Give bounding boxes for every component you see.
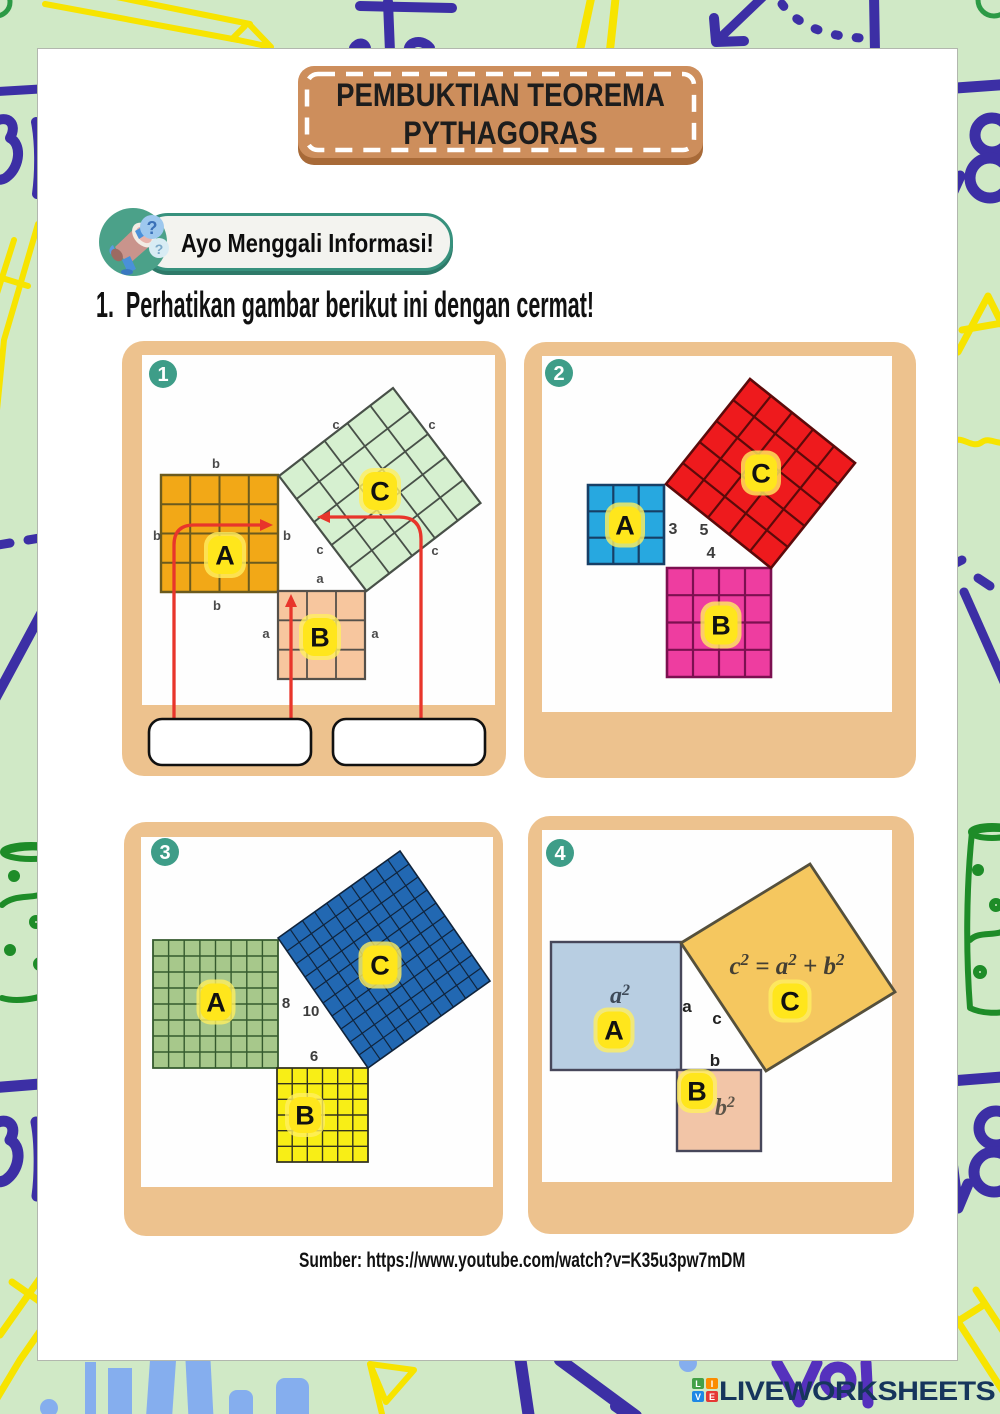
svg-text:B: B xyxy=(687,1077,707,1107)
svg-text:C: C xyxy=(370,951,390,981)
svg-text:6: 6 xyxy=(310,1048,318,1065)
svg-text:b: b xyxy=(153,528,161,543)
svg-text:A: A xyxy=(615,511,635,541)
svg-text:C: C xyxy=(780,987,800,1017)
svg-text:5: 5 xyxy=(700,522,709,539)
svg-text:10: 10 xyxy=(303,1003,320,1020)
svg-text:L: L xyxy=(695,1379,701,1389)
svg-text:c: c xyxy=(431,543,438,558)
svg-text:?: ? xyxy=(155,241,164,257)
svg-text:a: a xyxy=(262,626,270,641)
svg-text:1: 1 xyxy=(157,364,168,386)
svg-text:8: 8 xyxy=(282,995,290,1012)
svg-text:4: 4 xyxy=(554,843,566,865)
svg-text:2: 2 xyxy=(553,363,564,385)
svg-text:A: A xyxy=(215,541,235,571)
svg-text:c: c xyxy=(316,542,323,557)
svg-text:V: V xyxy=(695,1392,701,1402)
svg-text:3: 3 xyxy=(159,842,170,864)
svg-text:3: 3 xyxy=(669,521,678,538)
svg-text:A: A xyxy=(604,1016,624,1046)
svg-text:B: B xyxy=(711,611,731,641)
svg-text:a: a xyxy=(316,571,324,586)
svg-text:?: ? xyxy=(147,218,158,238)
svg-text:c: c xyxy=(428,417,435,432)
svg-text:B: B xyxy=(310,623,330,653)
svg-text:b: b xyxy=(213,598,221,613)
svg-text:c: c xyxy=(332,417,339,432)
svg-text:A: A xyxy=(206,988,226,1018)
svg-text:E: E xyxy=(709,1392,715,1402)
svg-text:C: C xyxy=(751,459,771,489)
svg-text:b: b xyxy=(710,1051,720,1070)
svg-text:a: a xyxy=(371,626,379,641)
svg-text:b: b xyxy=(212,456,220,471)
svg-text:B: B xyxy=(295,1101,315,1131)
svg-text:b: b xyxy=(283,528,291,543)
svg-text:c: c xyxy=(712,1009,721,1028)
svg-text:a: a xyxy=(682,997,692,1016)
svg-text:4: 4 xyxy=(707,545,716,562)
svg-text:C: C xyxy=(370,477,390,507)
svg-text:I: I xyxy=(711,1379,714,1389)
